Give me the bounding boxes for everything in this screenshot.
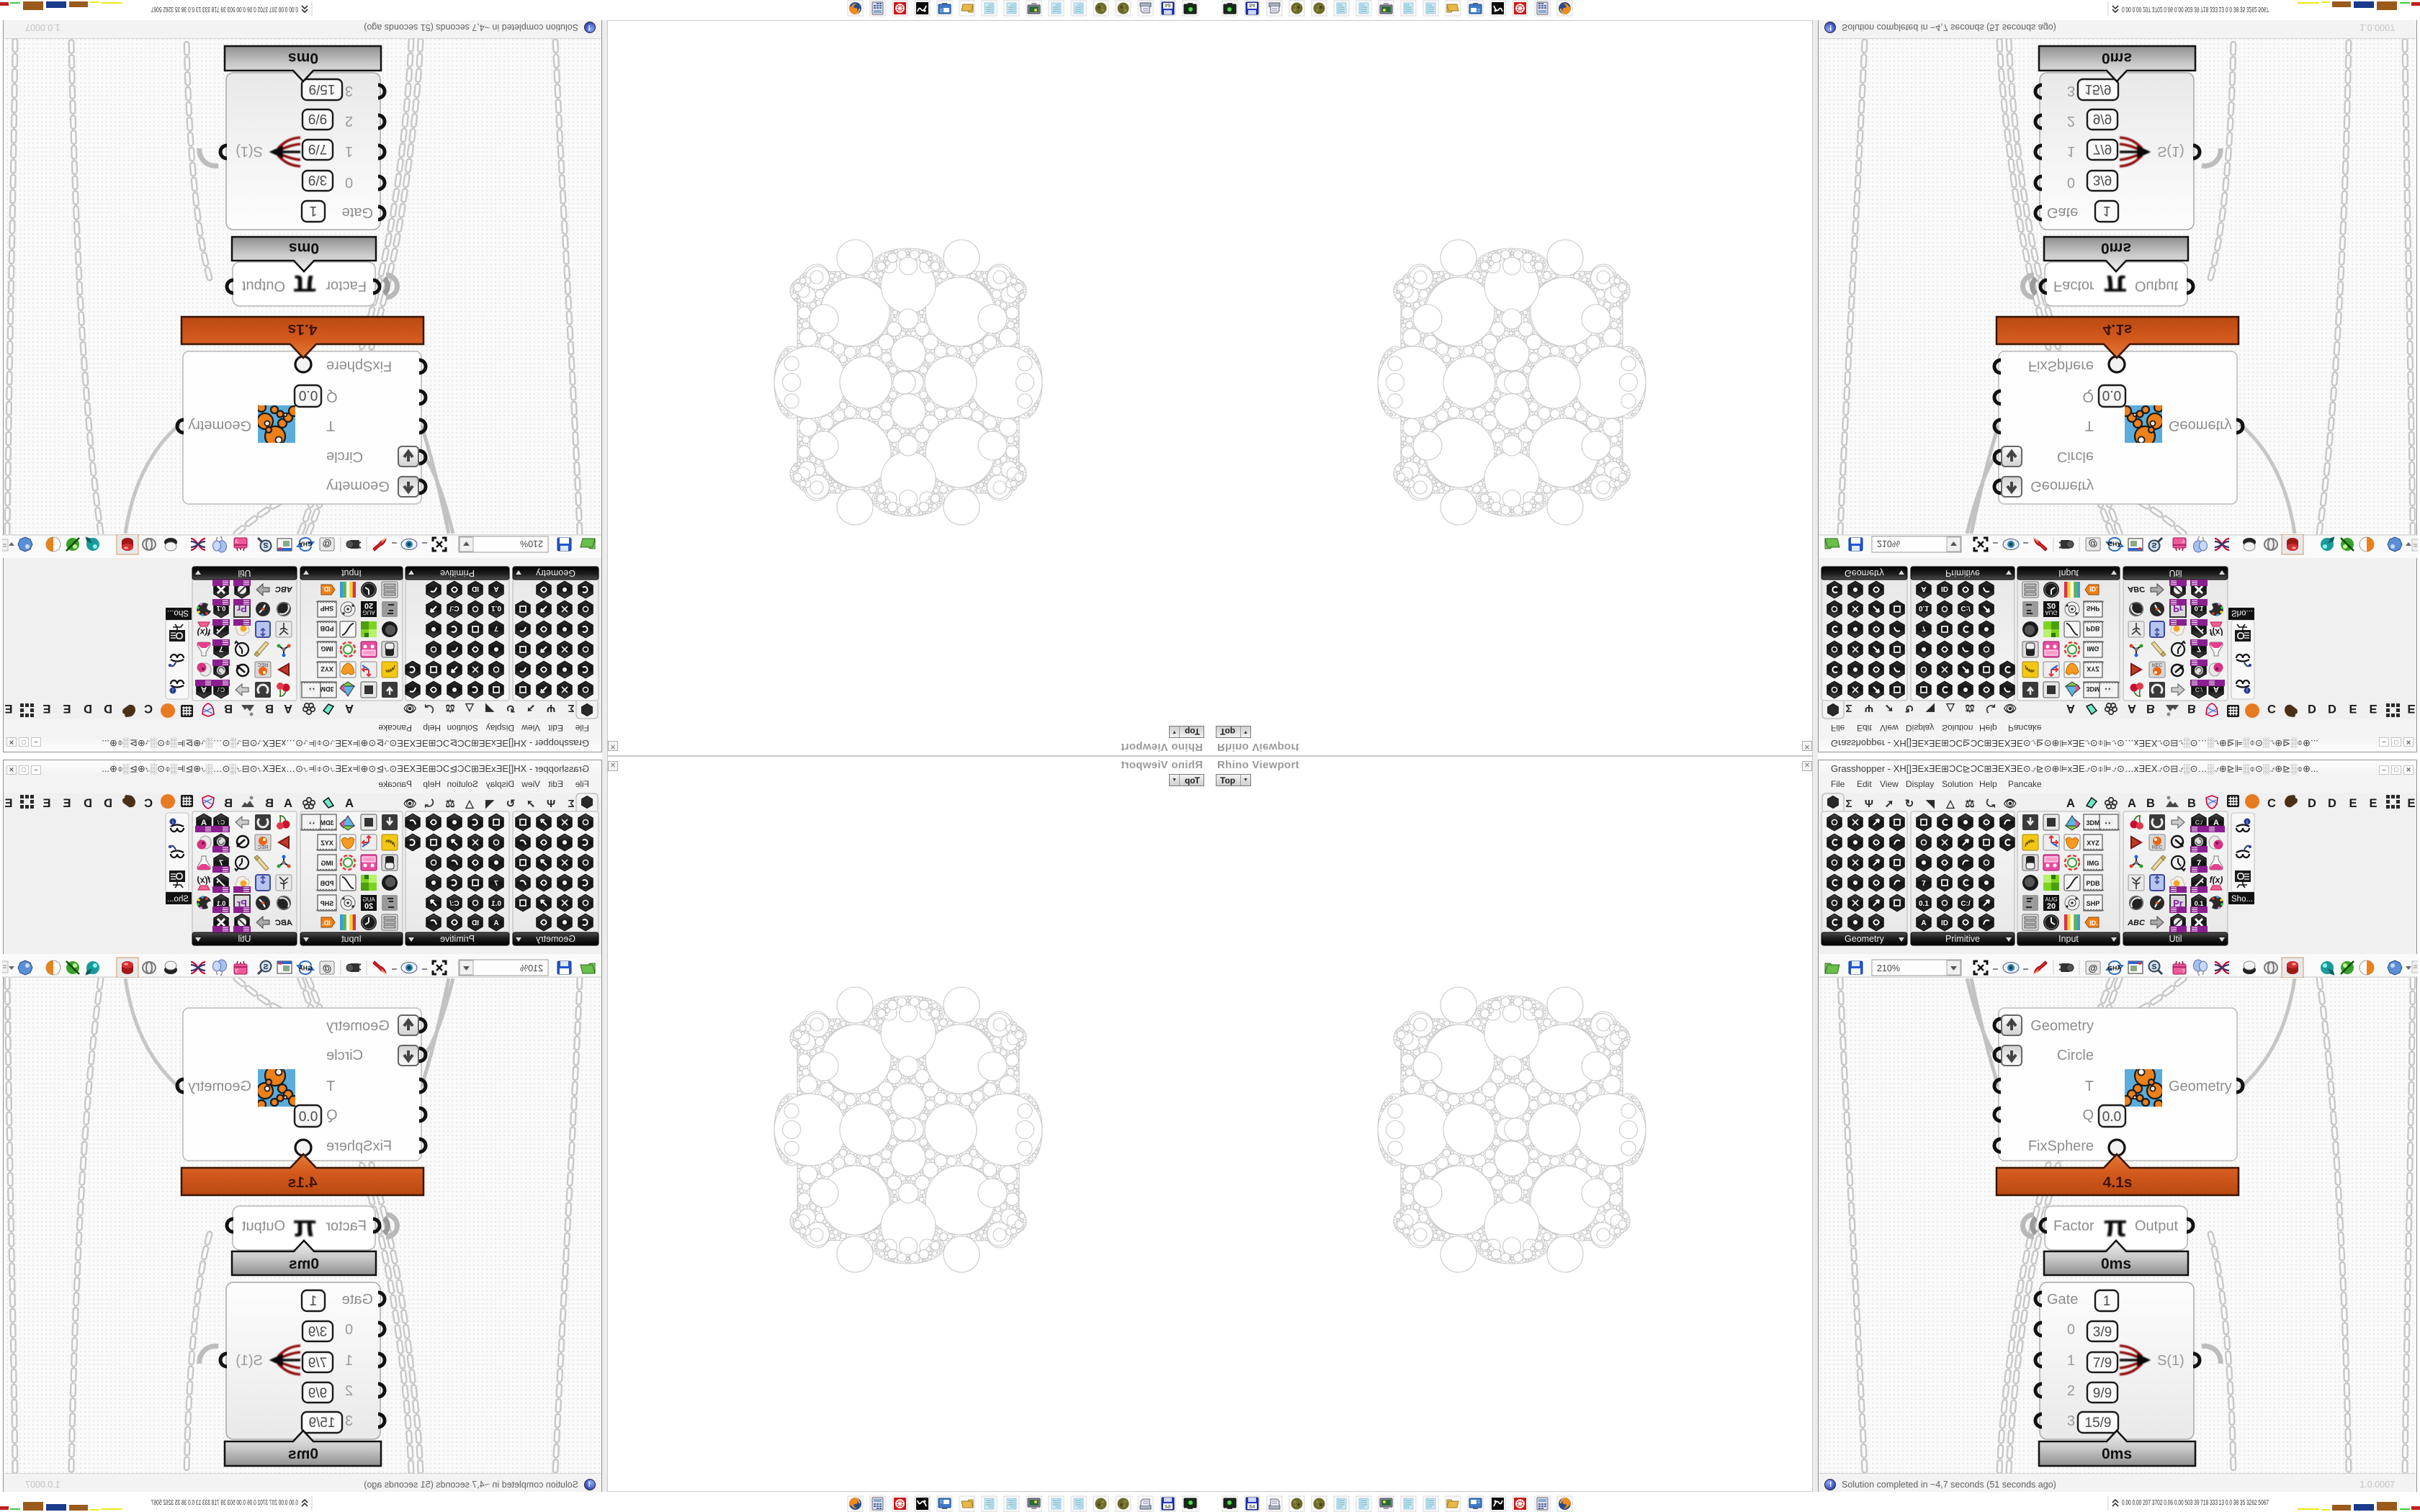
svg-text:1: 1	[310, 203, 318, 218]
svg-text:REC: REC	[258, 662, 269, 667]
svg-text:E: E	[63, 797, 71, 810]
svg-text:π: π	[293, 1209, 316, 1243]
svg-text:➚: ➚	[526, 798, 536, 810]
svg-text:T: T	[326, 1079, 335, 1094]
svg-text:Input: Input	[341, 934, 362, 944]
svg-text:2: 2	[345, 113, 353, 129]
svg-text:C:/: C:/	[2195, 686, 2203, 693]
svg-text:Geometry: Geometry	[2030, 478, 2094, 494]
svg-text:C:/: C:/	[1960, 900, 1971, 908]
svg-text:XYZ: XYZ	[321, 840, 333, 847]
svg-text:Σ: Σ	[568, 702, 574, 714]
svg-text:◥: ◥	[485, 702, 495, 714]
svg-text:Util: Util	[238, 568, 251, 578]
svg-text:0.0: 0.0	[2102, 1110, 2121, 1125]
svg-text:1: 1	[345, 1353, 353, 1369]
svg-text:f(x): f(x)	[2210, 627, 2223, 637]
svg-text:210%: 210%	[1877, 539, 1900, 549]
svg-text:↻: ↻	[1905, 798, 1914, 810]
svg-text:↻: ↻	[506, 798, 516, 810]
svg-text:4.1s: 4.1s	[288, 1174, 318, 1191]
svg-text:4.1s: 4.1s	[2103, 321, 2133, 338]
svg-text:@: @	[323, 963, 332, 973]
svg-text:3: 3	[2067, 1413, 2075, 1429]
svg-text:E: E	[63, 702, 71, 715]
svg-text:SHP: SHP	[2087, 900, 2100, 907]
svg-text:0.1: 0.1	[491, 900, 501, 908]
svg-text:Input: Input	[341, 568, 362, 578]
svg-text:△: △	[1945, 702, 1955, 714]
svg-text:S: S	[263, 541, 268, 549]
svg-text:0ms: 0ms	[288, 1446, 318, 1462]
svg-text:20: 20	[364, 902, 373, 911]
svg-text:Ψ: Ψ	[547, 702, 555, 714]
svg-text:7: 7	[1922, 880, 1926, 888]
svg-text:Ψ: Ψ	[1865, 798, 1873, 810]
svg-text:Factor: Factor	[326, 278, 367, 294]
svg-text:7/9: 7/9	[308, 1356, 327, 1371]
svg-text:3: 3	[2067, 83, 2075, 99]
svg-text:0: 0	[2067, 1322, 2075, 1338]
svg-text:FixSphere: FixSphere	[2028, 1138, 2094, 1154]
svg-text:T: T	[2085, 418, 2094, 433]
svg-text:7/9: 7/9	[308, 141, 327, 156]
svg-text:A: A	[2066, 702, 2075, 715]
svg-text:2: 2	[2067, 1383, 2075, 1399]
svg-text:Primitive: Primitive	[1945, 934, 1980, 944]
svg-text:Gate: Gate	[2047, 1292, 2078, 1308]
svg-text:Primitive: Primitive	[440, 568, 475, 578]
svg-text:A: A	[493, 585, 498, 593]
svg-text:Ψ: Ψ	[1865, 702, 1873, 714]
svg-text:D: D	[2328, 702, 2336, 715]
svg-text:FixSphere: FixSphere	[2028, 358, 2094, 374]
svg-text:0.00 0.00 207 3702 0.06 0.00 5: 0.00 0.00 207 3702 0.06 0.00 503 39 718 …	[2122, 1498, 2269, 1507]
svg-text:3/9: 3/9	[308, 1325, 327, 1340]
svg-text:E: E	[2407, 702, 2415, 715]
svg-text:⤿: ⤿	[1986, 798, 1996, 810]
svg-text:E: E	[2349, 797, 2357, 810]
svg-text:SHP: SHP	[2087, 605, 2100, 612]
svg-text:3DM: 3DM	[2086, 685, 2099, 693]
svg-text:👀: 👀	[2105, 819, 2112, 827]
svg-text:4.1s: 4.1s	[2103, 1174, 2133, 1191]
svg-text:3/9: 3/9	[2093, 1325, 2112, 1340]
svg-text:210%: 210%	[520, 539, 543, 549]
svg-text:Σ: Σ	[1845, 798, 1852, 810]
svg-text:E: E	[2369, 797, 2377, 810]
svg-text:👁: 👁	[403, 702, 416, 714]
svg-text:FixSphere: FixSphere	[326, 358, 392, 374]
svg-text:Geometry: Geometry	[535, 568, 575, 578]
svg-text:Sho...: Sho...	[167, 895, 189, 904]
svg-text:1: 1	[2067, 1353, 2075, 1369]
svg-text:0.1: 0.1	[217, 900, 226, 907]
svg-text:0ms: 0ms	[289, 240, 319, 256]
svg-text:ID.: ID.	[2089, 919, 2098, 927]
svg-text:7: 7	[1922, 624, 1926, 632]
svg-text:GHA: GHA	[299, 965, 313, 972]
svg-text:20: 20	[2047, 902, 2056, 911]
svg-text:Factor: Factor	[326, 1218, 367, 1234]
svg-text:↻: ↻	[1905, 702, 1914, 714]
svg-text:7/9: 7/9	[2093, 141, 2112, 156]
svg-text:B: B	[2187, 797, 2196, 810]
svg-text:B: B	[265, 797, 274, 810]
svg-text:⚖: ⚖	[445, 798, 454, 810]
svg-text:ID: ID	[472, 919, 479, 927]
svg-text:15/9: 15/9	[2085, 1416, 2112, 1431]
svg-text:9/9: 9/9	[2093, 111, 2112, 126]
svg-text:A: A	[2066, 797, 2075, 810]
svg-text:👁: 👁	[2003, 798, 2017, 810]
svg-text:A: A	[284, 702, 292, 715]
svg-text:3DM: 3DM	[320, 819, 333, 827]
svg-text:Sho...: Sho...	[167, 608, 189, 617]
svg-text:20: 20	[2047, 601, 2056, 610]
svg-text:Util: Util	[238, 934, 251, 944]
svg-text:Circle: Circle	[326, 449, 363, 464]
svg-text:0.1: 0.1	[2195, 605, 2204, 612]
svg-text:Geometry: Geometry	[2030, 1018, 2094, 1034]
svg-text:Geometry: Geometry	[1845, 568, 1885, 578]
svg-text:?: ?	[2182, 537, 2185, 544]
svg-text:3: 3	[345, 83, 353, 99]
svg-text:T: T	[2085, 1079, 2094, 1094]
svg-text:C:/: C:/	[217, 819, 225, 826]
svg-text:1: 1	[310, 1294, 318, 1309]
svg-text:0.1: 0.1	[2195, 900, 2204, 907]
svg-text:B: B	[2187, 702, 2196, 715]
svg-text:Geometry: Geometry	[2169, 1079, 2232, 1094]
svg-text:E: E	[2369, 702, 2377, 715]
svg-text:B: B	[2146, 797, 2155, 810]
svg-text:Geometry: Geometry	[188, 1079, 251, 1094]
svg-text:Geometry: Geometry	[535, 934, 575, 944]
svg-text:1: 1	[2067, 143, 2075, 159]
svg-text:64: 64	[1165, 1505, 1171, 1510]
svg-text:IMG: IMG	[2087, 860, 2099, 867]
svg-text:ABC: ABC	[2127, 919, 2146, 927]
svg-text:@: @	[2089, 963, 2098, 973]
svg-text:Factor: Factor	[2053, 1218, 2094, 1234]
svg-text:ID: ID	[1941, 585, 1948, 593]
svg-text:GHA: GHA	[2108, 541, 2122, 548]
svg-text:D: D	[2308, 797, 2316, 810]
svg-text:D: D	[84, 702, 92, 715]
svg-text:PDB: PDB	[320, 625, 334, 632]
svg-text:👀: 👀	[2105, 685, 2112, 693]
svg-text:S(1): S(1)	[2157, 143, 2184, 159]
svg-text:⚖: ⚖	[1965, 798, 1974, 810]
svg-text:0.00 0.00 207 3702 0.06 0.00 5: 0.00 0.00 207 3702 0.06 0.00 503 39 718 …	[151, 5, 298, 14]
svg-text:GHA: GHA	[2108, 965, 2122, 972]
svg-text:REC: REC	[2152, 845, 2163, 850]
svg-text:C:/: C:/	[449, 900, 460, 908]
svg-text:Sho...: Sho...	[2231, 895, 2253, 904]
svg-text:ABC: ABC	[274, 919, 293, 927]
svg-text:0ms: 0ms	[289, 1256, 319, 1272]
svg-text:D: D	[104, 797, 112, 810]
svg-text:210%: 210%	[520, 963, 543, 973]
svg-text:1: 1	[2103, 203, 2111, 218]
svg-text:Q: Q	[326, 1107, 338, 1123]
svg-text:0ms: 0ms	[288, 50, 318, 66]
svg-text:E: E	[42, 702, 50, 715]
svg-text:C: C	[2267, 797, 2276, 810]
svg-text:0.1: 0.1	[491, 604, 501, 612]
svg-text:REC: REC	[2152, 662, 2163, 667]
svg-text:B: B	[2146, 702, 2155, 715]
svg-text:0.0: 0.0	[299, 1110, 318, 1125]
svg-text:3DM: 3DM	[2086, 819, 2099, 827]
svg-text:IMG: IMG	[2087, 645, 2099, 652]
svg-text:2: 2	[2067, 113, 2075, 129]
svg-text:A: A	[345, 797, 354, 810]
svg-text:⤿: ⤿	[1986, 702, 1996, 714]
svg-text:ID.: ID.	[322, 585, 331, 593]
svg-text:IMG: IMG	[321, 645, 333, 652]
svg-text:IMG: IMG	[321, 860, 333, 867]
svg-text:XYZ: XYZ	[321, 665, 333, 672]
svg-text:@: @	[323, 539, 332, 549]
svg-text:Primitive: Primitive	[1945, 568, 1980, 578]
svg-text:π: π	[2104, 1209, 2127, 1243]
svg-text:Geometry: Geometry	[326, 1018, 390, 1034]
svg-text:PDB: PDB	[2086, 880, 2100, 887]
svg-text:E: E	[2407, 797, 2415, 810]
svg-text:👁: 👁	[403, 798, 416, 810]
svg-text:Output: Output	[242, 278, 285, 294]
svg-text:D: D	[2328, 797, 2336, 810]
svg-text:➚: ➚	[1885, 798, 1894, 810]
svg-text:👀: 👀	[307, 685, 315, 693]
svg-text:Q: Q	[2082, 389, 2094, 405]
svg-text:20: 20	[364, 601, 373, 610]
svg-text:ID.: ID.	[2089, 585, 2098, 593]
svg-text:D: D	[84, 797, 92, 810]
svg-text:Output: Output	[2135, 1218, 2178, 1234]
svg-text:👀: 👀	[307, 819, 315, 827]
svg-text:3/9: 3/9	[2093, 172, 2112, 187]
svg-text:C:/: C:/	[2195, 819, 2203, 826]
svg-text:ID: ID	[1941, 919, 1948, 927]
svg-text:D: D	[2308, 702, 2316, 715]
svg-text:A: A	[1921, 919, 1926, 927]
svg-text:➚: ➚	[1885, 702, 1894, 714]
svg-text:◥: ◥	[1925, 798, 1935, 810]
svg-text:B: B	[265, 702, 274, 715]
svg-text:C:/: C:/	[217, 686, 225, 693]
svg-text:➚: ➚	[526, 702, 536, 714]
svg-text:C: C	[144, 702, 153, 715]
svg-text:PDB: PDB	[2086, 625, 2100, 632]
svg-text:Circle: Circle	[2057, 1048, 2094, 1063]
svg-text:A: A	[284, 797, 292, 810]
svg-text:7/9: 7/9	[2093, 1356, 2112, 1371]
svg-text:SHP: SHP	[321, 900, 334, 907]
svg-text:0ms: 0ms	[2102, 50, 2132, 66]
svg-text:Sho...: Sho...	[2231, 608, 2253, 617]
svg-text:Q: Q	[2082, 1107, 2094, 1123]
svg-text:2: 2	[345, 1383, 353, 1399]
svg-text:S(1): S(1)	[236, 1353, 263, 1369]
svg-text:FixSphere: FixSphere	[326, 1138, 392, 1154]
svg-text:A: A	[345, 702, 354, 715]
svg-text:C: C	[2267, 702, 2276, 715]
svg-text:4.1s: 4.1s	[288, 321, 318, 338]
svg-text:T: T	[326, 418, 335, 433]
svg-text:Util: Util	[2169, 568, 2182, 578]
svg-text:⤿: ⤿	[424, 702, 434, 714]
svg-text:A: A	[1921, 585, 1926, 593]
svg-text:?: ?	[235, 968, 238, 975]
svg-text:Primitive: Primitive	[440, 934, 475, 944]
svg-text:f(x): f(x)	[197, 627, 211, 637]
svg-text:E: E	[2349, 702, 2357, 715]
svg-text:0: 0	[345, 1322, 353, 1338]
svg-text:Σ: Σ	[568, 798, 574, 810]
svg-text:◥: ◥	[485, 798, 495, 810]
svg-text:Circle: Circle	[326, 1048, 363, 1063]
svg-text:⤿: ⤿	[424, 798, 434, 810]
svg-text:64: 64	[1250, 1505, 1255, 1510]
svg-text:Gate: Gate	[342, 1292, 373, 1308]
svg-text:π: π	[2104, 269, 2127, 303]
svg-text:Output: Output	[242, 1218, 285, 1234]
svg-text:Geometry: Geometry	[2169, 418, 2232, 433]
svg-text:210%: 210%	[1877, 963, 1900, 973]
svg-text:Output: Output	[2135, 278, 2178, 294]
svg-text:15/9: 15/9	[2085, 81, 2112, 96]
svg-text:0.1: 0.1	[217, 605, 226, 612]
svg-text:7: 7	[494, 880, 498, 888]
svg-text:XYZ: XYZ	[2087, 840, 2099, 847]
svg-text:ABC: ABC	[274, 585, 293, 593]
svg-text:△: △	[465, 702, 475, 714]
svg-text:?: ?	[2182, 968, 2185, 975]
svg-text:0: 0	[2067, 174, 2075, 190]
svg-text:15/9: 15/9	[309, 81, 336, 96]
svg-text:7: 7	[494, 624, 498, 632]
svg-text:0ms: 0ms	[2101, 1256, 2131, 1272]
svg-text:SHP: SHP	[321, 605, 334, 612]
svg-text:⚖: ⚖	[1965, 702, 1974, 714]
svg-text:0.0: 0.0	[299, 387, 318, 402]
svg-text:Geometry: Geometry	[1845, 934, 1885, 944]
svg-text:XYZ: XYZ	[2087, 665, 2099, 672]
svg-text:3DM: 3DM	[320, 685, 333, 693]
svg-text:C:/: C:/	[449, 604, 460, 612]
svg-text:S(1): S(1)	[236, 143, 263, 159]
svg-text:GHA: GHA	[299, 541, 313, 548]
svg-text:ID.: ID.	[322, 919, 331, 927]
svg-text:E: E	[4, 797, 12, 810]
svg-text:0ms: 0ms	[2101, 240, 2131, 256]
svg-text:REC: REC	[258, 845, 269, 850]
svg-text:0.00 0.00 207 3702 0.06 0.00 5: 0.00 0.00 207 3702 0.06 0.00 503 39 718 …	[151, 1498, 298, 1507]
svg-text:B: B	[224, 797, 233, 810]
svg-text:ABC: ABC	[2127, 585, 2146, 593]
svg-text:C:/: C:/	[1960, 604, 1971, 612]
svg-text:B: B	[224, 702, 233, 715]
svg-text:3/9: 3/9	[308, 172, 327, 187]
svg-text:Gate: Gate	[342, 204, 373, 220]
svg-text:15/9: 15/9	[309, 1416, 336, 1431]
svg-text:0ms: 0ms	[2102, 1446, 2132, 1462]
svg-text:E: E	[42, 797, 50, 810]
svg-text:E: E	[4, 702, 12, 715]
svg-text:ID: ID	[472, 585, 479, 593]
svg-text:0.00 0.00 207 3702 0.06 0.00 5: 0.00 0.00 207 3702 0.06 0.00 503 39 718 …	[2122, 5, 2269, 14]
svg-text:Gate: Gate	[2047, 204, 2078, 220]
svg-text:A: A	[2128, 702, 2136, 715]
svg-text:Input: Input	[2058, 568, 2079, 578]
svg-text:9/9: 9/9	[2093, 1386, 2112, 1401]
svg-text:Σ: Σ	[1845, 702, 1852, 714]
svg-text:Circle: Circle	[2057, 449, 2094, 464]
svg-text:Geometry: Geometry	[188, 418, 251, 433]
svg-text:0.1: 0.1	[1919, 604, 1929, 612]
svg-text:△: △	[1945, 798, 1955, 810]
svg-text:Q: Q	[326, 389, 338, 405]
svg-text:1: 1	[2103, 1294, 2111, 1309]
svg-text:3: 3	[345, 1413, 353, 1429]
svg-text:△: △	[465, 798, 475, 810]
svg-text:Input: Input	[2058, 934, 2079, 944]
svg-text:S: S	[263, 963, 268, 971]
svg-text:S: S	[2152, 963, 2157, 971]
svg-text:@: @	[2089, 539, 2098, 549]
svg-text:0: 0	[345, 174, 353, 190]
svg-text:↻: ↻	[506, 702, 516, 714]
svg-text:S: S	[2152, 541, 2157, 549]
svg-text:PDB: PDB	[320, 880, 334, 887]
svg-text:A: A	[493, 919, 498, 927]
svg-text:S(1): S(1)	[2157, 1353, 2184, 1369]
svg-text:64: 64	[1165, 2, 1171, 7]
svg-text:f(x): f(x)	[197, 875, 211, 885]
svg-text:◥: ◥	[1925, 702, 1935, 714]
svg-text:?: ?	[235, 537, 238, 544]
svg-text:Ψ: Ψ	[547, 798, 555, 810]
svg-text:0.0: 0.0	[2102, 387, 2121, 402]
svg-text:0.1: 0.1	[1919, 900, 1929, 908]
svg-text:A: A	[2128, 797, 2136, 810]
svg-text:👁: 👁	[2003, 702, 2017, 714]
svg-text:64: 64	[1250, 2, 1255, 7]
svg-text:π: π	[293, 269, 316, 303]
svg-text:C: C	[144, 797, 153, 810]
svg-text:⚖: ⚖	[445, 702, 454, 714]
svg-text:1: 1	[345, 143, 353, 159]
svg-text:Util: Util	[2169, 934, 2182, 944]
svg-text:9/9: 9/9	[308, 1386, 327, 1401]
svg-text:D: D	[104, 702, 112, 715]
svg-text:Geometry: Geometry	[326, 478, 390, 494]
svg-text:f(x): f(x)	[2210, 875, 2223, 885]
svg-text:Factor: Factor	[2053, 278, 2094, 294]
svg-text:9/9: 9/9	[308, 111, 327, 126]
